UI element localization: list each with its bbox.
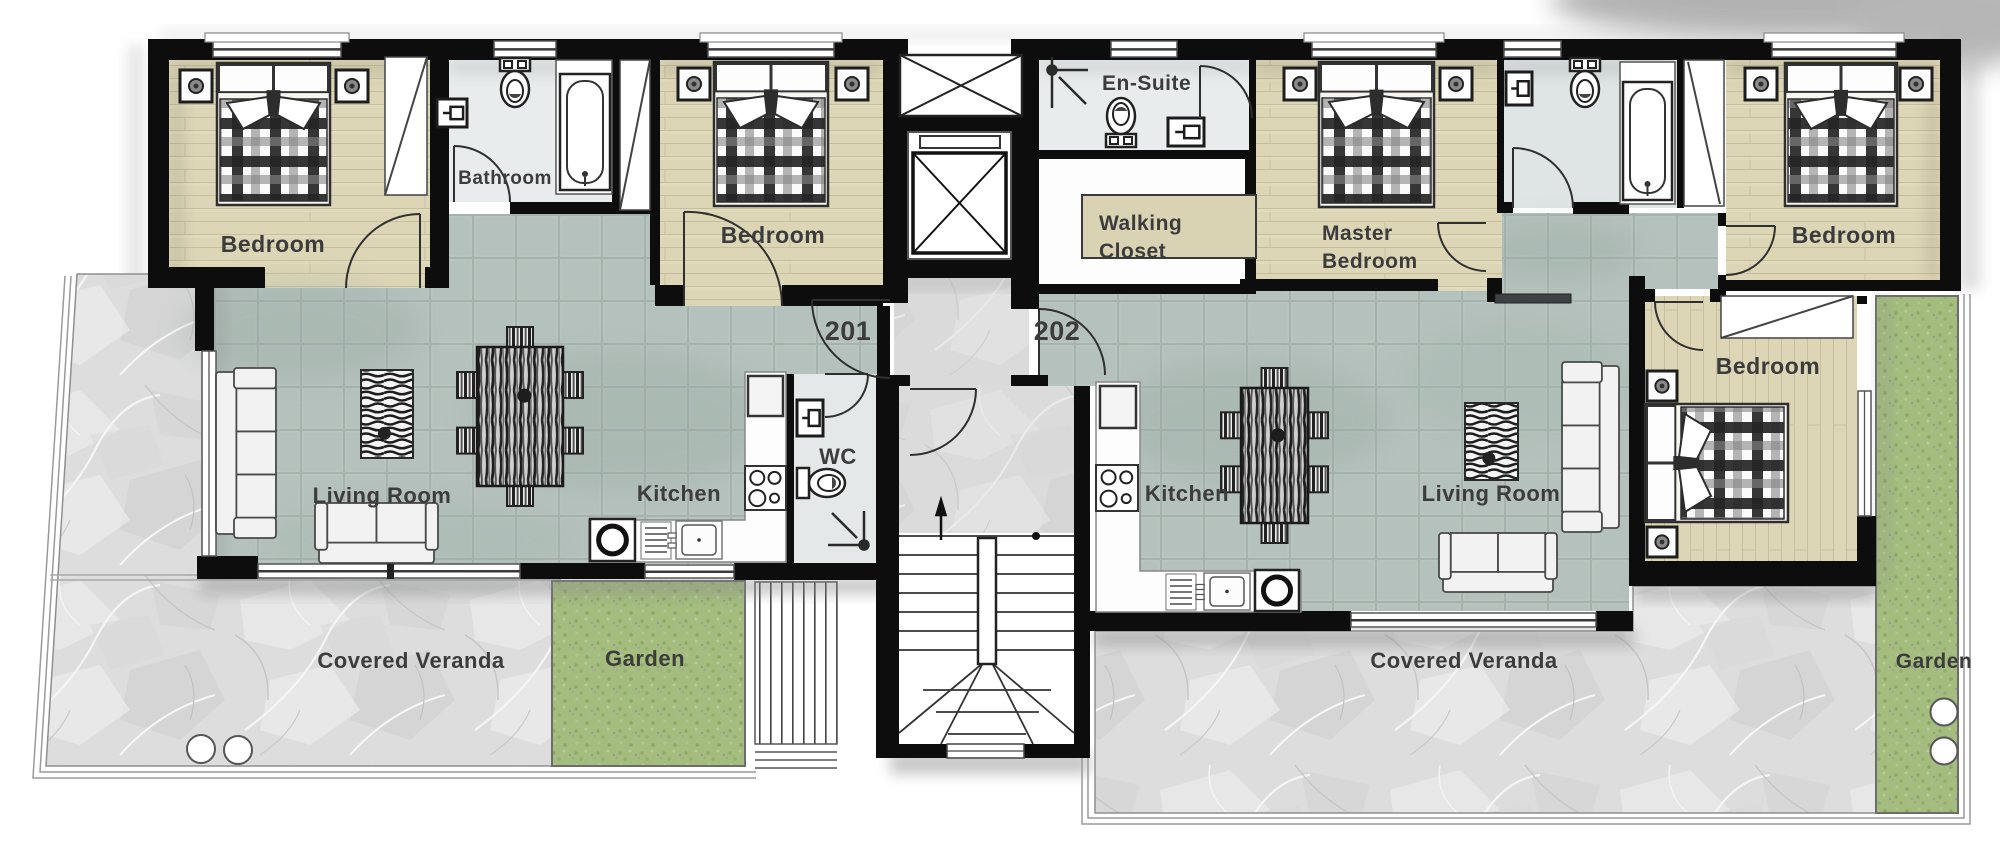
svg-text:Covered Veranda: Covered Veranda bbox=[317, 648, 505, 673]
svg-text:Kitchen: Kitchen bbox=[1145, 481, 1229, 506]
svg-text:Bedroom: Bedroom bbox=[1792, 222, 1896, 248]
svg-text:Garden: Garden bbox=[605, 646, 685, 671]
svg-text:WC: WC bbox=[819, 444, 857, 469]
svg-text:Covered Veranda: Covered Veranda bbox=[1370, 648, 1558, 673]
svg-text:202: 202 bbox=[1034, 316, 1081, 346]
svg-text:Kitchen: Kitchen bbox=[637, 481, 721, 506]
svg-text:Bathroom: Bathroom bbox=[458, 168, 552, 189]
svg-text:Bedroom: Bedroom bbox=[721, 222, 825, 248]
svg-text:Living Room: Living Room bbox=[313, 483, 452, 508]
svg-text:Closet: Closet bbox=[1099, 240, 1166, 263]
svg-text:Bedroom: Bedroom bbox=[1322, 250, 1418, 273]
svg-text:Bedroom: Bedroom bbox=[221, 231, 325, 257]
svg-text:En-Suite: En-Suite bbox=[1102, 72, 1191, 95]
svg-text:Garden: Garden bbox=[1896, 650, 1973, 673]
svg-text:Walking: Walking bbox=[1099, 212, 1182, 235]
svg-text:Living Room: Living Room bbox=[1422, 481, 1561, 506]
svg-text:Bedroom: Bedroom bbox=[1716, 353, 1820, 379]
svg-text:Master: Master bbox=[1322, 222, 1393, 245]
svg-text:201: 201 bbox=[825, 316, 872, 346]
